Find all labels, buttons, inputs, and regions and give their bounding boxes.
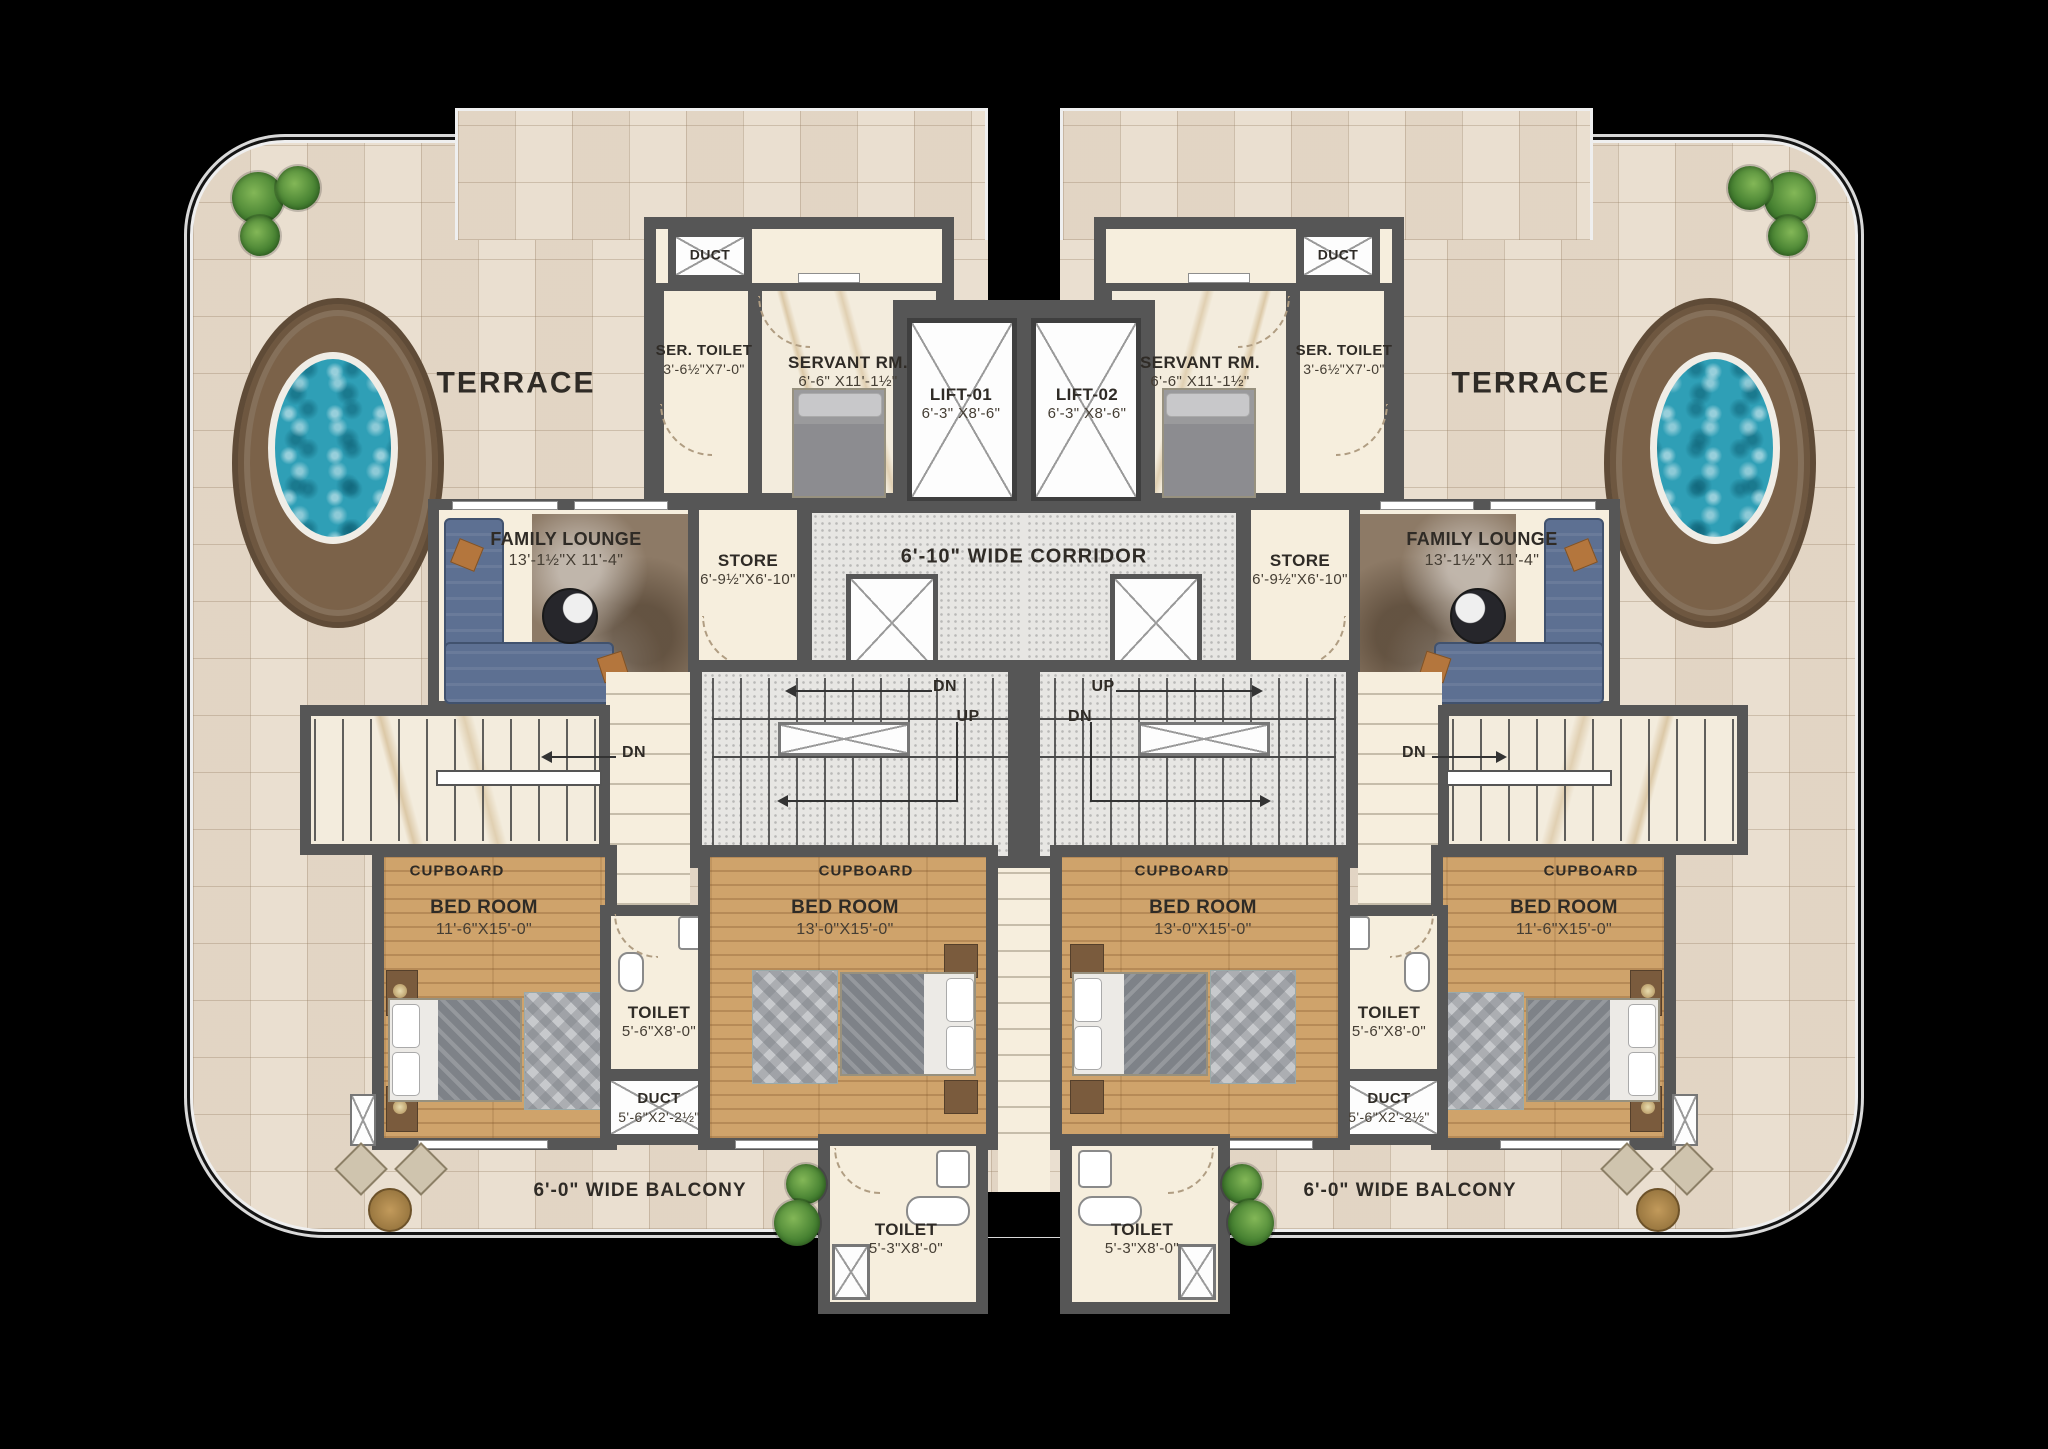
room-dims: 13'-0"X15'-0" bbox=[791, 920, 899, 940]
room-dims: 3'-6½"X7'-0" bbox=[656, 361, 753, 379]
room-name: SER. TOILET bbox=[656, 342, 753, 361]
stair-up-label-right: UP bbox=[1091, 677, 1114, 697]
room-name: TOILET bbox=[869, 1219, 943, 1240]
side-stair-dn-label-left: DN bbox=[622, 743, 646, 763]
duct-top-label-right: DUCT bbox=[1318, 246, 1358, 264]
lift1-label: LIFT-01 6'-3" X8'-6" bbox=[922, 384, 1001, 424]
servant-label-right: SERVANT RM. 6'-6" X11'-1½" bbox=[1140, 352, 1260, 392]
room-dims: 5'-6"X8'-0" bbox=[622, 1023, 696, 1042]
room-dims: 6'-6" X11'-1½" bbox=[1140, 373, 1260, 392]
room-dims: 6'-9½"X6'-10" bbox=[700, 571, 796, 590]
servant-label-left: SERVANT RM. 6'-6" X11'-1½" bbox=[788, 352, 908, 392]
toilet-mid-label-right: TOILET 5'-6"X8'-0" bbox=[1352, 1002, 1426, 1042]
room-name: LIFT-01 bbox=[922, 384, 1001, 405]
room-dims: 13'-1½"X 11'-4" bbox=[1406, 550, 1557, 570]
room-name: BED ROOM bbox=[1510, 896, 1618, 920]
stair-dn-label-left: DN bbox=[933, 677, 957, 697]
duct-mid-label-left: DUCT 5'-6"X2'-2½" bbox=[618, 1090, 700, 1126]
ser-toilet-label-left: SER. TOILET 3'-6½"X7'-0" bbox=[656, 342, 753, 378]
room-dims: 6'-3" X8'-6" bbox=[1048, 405, 1127, 424]
room-dims: 13'-0"X15'-0" bbox=[1149, 920, 1257, 940]
room-name: FAMILY LOUNGE bbox=[1406, 528, 1557, 551]
room-name: SER. TOILET bbox=[1296, 342, 1393, 361]
room-name: SERVANT RM. bbox=[1140, 352, 1260, 373]
room-name: BED ROOM bbox=[430, 896, 538, 920]
cupboard-label: CUPBOARD bbox=[819, 863, 914, 882]
duct-top-label-left: DUCT bbox=[690, 246, 730, 264]
store-label-left: STORE 6'-9½"X6'-10" bbox=[700, 550, 796, 590]
stair-up-label-left: UP bbox=[956, 707, 979, 727]
room-dims: 13'-1½"X 11'-4" bbox=[490, 550, 641, 570]
room-dims: 11'-6"X15'-0" bbox=[1510, 920, 1618, 940]
room-dims: 5'-3"X8'-0" bbox=[1105, 1240, 1179, 1259]
store-label-right: STORE 6'-9½"X6'-10" bbox=[1252, 550, 1348, 590]
bedroom-inner-label-left: BED ROOM 13'-0"X15'-0" bbox=[791, 896, 899, 940]
bedroom-inner-label-right: BED ROOM 13'-0"X15'-0" bbox=[1149, 896, 1257, 940]
room-name: BED ROOM bbox=[791, 896, 899, 920]
toilet-bottom-label-left: TOILET 5'-3"X8'-0" bbox=[869, 1219, 943, 1259]
cupboard-label: CUPBOARD bbox=[1544, 863, 1639, 882]
family-lounge-label-left: FAMILY LOUNGE 13'-1½"X 11'-4" bbox=[490, 528, 641, 571]
toilet-bottom-label-right: TOILET 5'-3"X8'-0" bbox=[1105, 1219, 1179, 1259]
corridor-label: 6'-10" WIDE CORRIDOR bbox=[901, 545, 1147, 570]
room-name: FAMILY LOUNGE bbox=[490, 528, 641, 551]
bedroom-outer-label-left: BED ROOM 11'-6"X15'-0" bbox=[430, 896, 538, 940]
room-name: SERVANT RM. bbox=[788, 352, 908, 373]
room-name: DUCT bbox=[618, 1090, 700, 1109]
room-dims: 5'-6"X8'-0" bbox=[1352, 1023, 1426, 1042]
room-dims: 6'-3" X8'-6" bbox=[922, 405, 1001, 424]
toilet-mid-label-left: TOILET 5'-6"X8'-0" bbox=[622, 1002, 696, 1042]
duct-mid-label-right: DUCT 5'-6"X2'-2½" bbox=[1348, 1090, 1430, 1126]
floor-plan-canvas: TERRACE TERRACE DUCT DUCT SER. TOILET 3'… bbox=[0, 0, 2048, 1449]
room-name: TOILET bbox=[1105, 1219, 1179, 1240]
lift2-label: LIFT-02 6'-3" X8'-6" bbox=[1048, 384, 1127, 424]
room-dims: 6'-9½"X6'-10" bbox=[1252, 571, 1348, 590]
balcony-label-right: 6'-0" WIDE BALCONY bbox=[1303, 1179, 1516, 1203]
room-name: LIFT-02 bbox=[1048, 384, 1127, 405]
room-name: TOILET bbox=[1352, 1002, 1426, 1023]
room-dims: 6'-6" X11'-1½" bbox=[788, 373, 908, 392]
terrace-label-left: TERRACE bbox=[436, 364, 595, 402]
balcony-label-left: 6'-0" WIDE BALCONY bbox=[533, 1179, 746, 1203]
side-stair-dn-label-right: DN bbox=[1402, 743, 1426, 763]
room-name: DUCT bbox=[1348, 1090, 1430, 1109]
room-dims: 3'-6½"X7'-0" bbox=[1296, 361, 1393, 379]
stair-dn-label-right: DN bbox=[1068, 707, 1092, 727]
room-dims: 5'-6"X2'-2½" bbox=[618, 1109, 700, 1127]
room-name: BED ROOM bbox=[1149, 896, 1257, 920]
room-name: TOILET bbox=[622, 1002, 696, 1023]
room-name: STORE bbox=[1252, 550, 1348, 571]
room-name: STORE bbox=[700, 550, 796, 571]
room-dims: 5'-6"X2'-2½" bbox=[1348, 1109, 1430, 1127]
room-dims: 5'-3"X8'-0" bbox=[869, 1240, 943, 1259]
family-lounge-label-right: FAMILY LOUNGE 13'-1½"X 11'-4" bbox=[1406, 528, 1557, 571]
terrace-label-right: TERRACE bbox=[1451, 364, 1610, 402]
room-dims: 11'-6"X15'-0" bbox=[430, 920, 538, 940]
bedroom-outer-label-right: BED ROOM 11'-6"X15'-0" bbox=[1510, 896, 1618, 940]
cupboard-label: CUPBOARD bbox=[1135, 863, 1230, 882]
ser-toilet-label-right: SER. TOILET 3'-6½"X7'-0" bbox=[1296, 342, 1393, 378]
labels-layer: TERRACE TERRACE DUCT DUCT SER. TOILET 3'… bbox=[0, 0, 2048, 1449]
cupboard-label: CUPBOARD bbox=[410, 863, 505, 882]
